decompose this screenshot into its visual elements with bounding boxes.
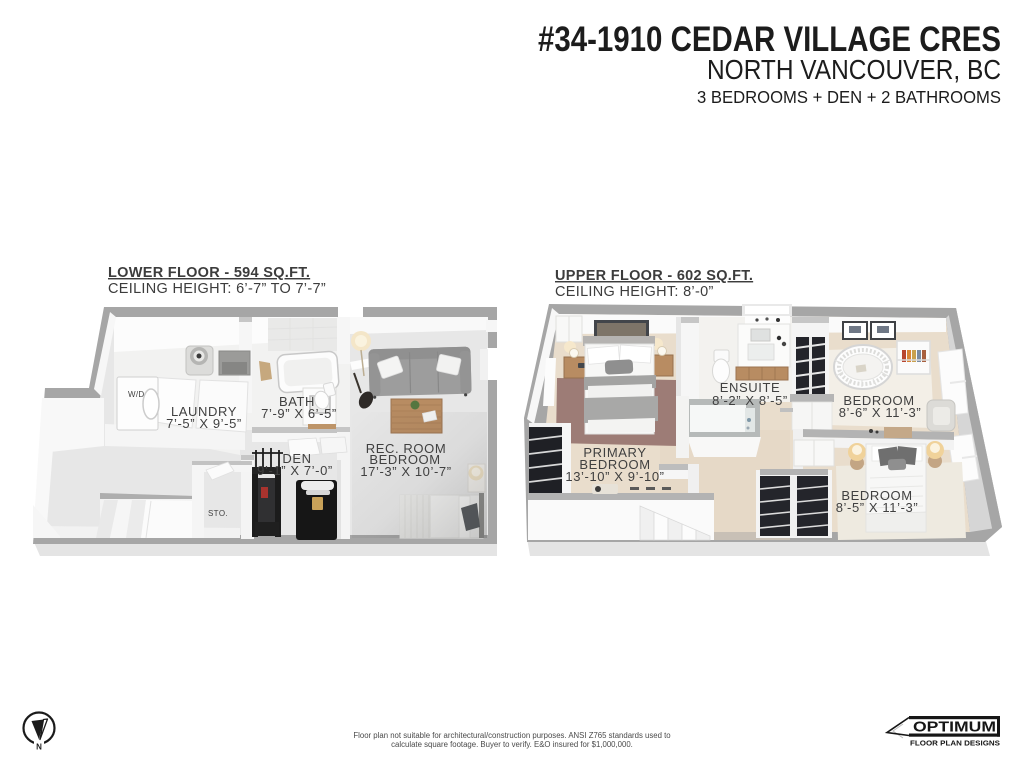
svg-text:UPPER FLOOR - 602 SQ.FT.: UPPER FLOOR - 602 SQ.FT. — [555, 268, 753, 284]
svg-text:N: N — [36, 743, 42, 752]
svg-text:STO.: STO. — [208, 509, 228, 518]
svg-text:CEILING HEIGHT: 6’-7” TO 7’-7”: CEILING HEIGHT: 6’-7” TO 7’-7” — [108, 281, 326, 297]
svg-text:7’-5” X 9’-5”: 7’-5” X 9’-5” — [166, 416, 242, 431]
svg-text:LOWER FLOOR - 594 SQ.FT.: LOWER FLOOR - 594 SQ.FT. — [108, 265, 310, 281]
svg-text:17’-3” X 10’-7”: 17’-3” X 10’-7” — [360, 464, 451, 479]
svg-text:Floor plan not suitable for ar: Floor plan not suitable for architectura… — [353, 731, 671, 740]
svg-text:FLOOR PLAN DESIGNS: FLOOR PLAN DESIGNS — [910, 739, 1000, 748]
svg-text:13’-10” X 9’-10”: 13’-10” X 9’-10” — [565, 469, 664, 484]
svg-text:7’-9” X 6’-5”: 7’-9” X 6’-5” — [261, 406, 337, 421]
svg-text:8’-5” X 11’-3”: 8’-5” X 11’-3” — [836, 500, 919, 515]
svg-text:OPTIMUM: OPTIMUM — [913, 719, 996, 736]
svg-text:calculate square footage. Buye: calculate square footage. Buyer to verif… — [391, 740, 633, 749]
svg-text:NORTH VANCOUVER, BC: NORTH VANCOUVER, BC — [707, 54, 1001, 85]
svg-text:8’-2” X 8’-5”: 8’-2” X 8’-5” — [712, 393, 788, 408]
svg-text:CEILING HEIGHT: 8’-0”: CEILING HEIGHT: 8’-0” — [555, 284, 714, 300]
svg-text:3 BEDROOMS + DEN + 2 BATHROOMS: 3 BEDROOMS + DEN + 2 BATHROOMS — [697, 87, 1001, 107]
svg-text:9’-1” X 7’-0”: 9’-1” X 7’-0” — [257, 463, 333, 478]
svg-text:8’-6” X 11’-3”: 8’-6” X 11’-3” — [839, 405, 922, 420]
svg-text:W/D: W/D — [128, 390, 144, 399]
